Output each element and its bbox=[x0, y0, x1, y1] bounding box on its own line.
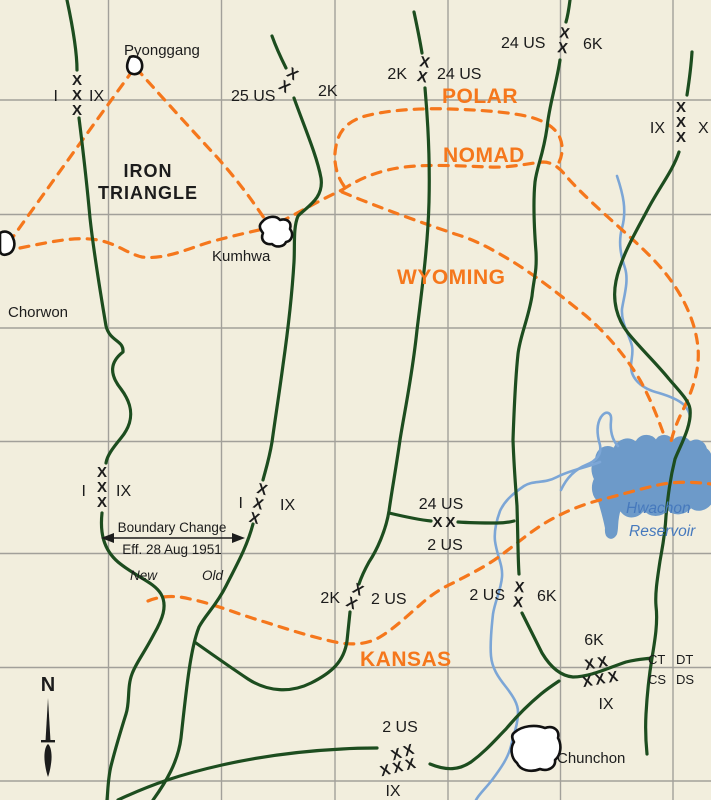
unit-boundary-marker-symbol: XXX bbox=[97, 464, 107, 511]
north-label: N bbox=[41, 674, 55, 696]
unit-label: 2 US bbox=[469, 587, 505, 604]
iron-triangle-label-line1: IRON bbox=[124, 161, 173, 181]
unit-label: I bbox=[82, 483, 86, 500]
unit-label: 2 US bbox=[427, 537, 463, 554]
new-boundary-label: New bbox=[130, 568, 158, 583]
unit-label: IX bbox=[385, 783, 400, 800]
phase-line-wyoming-label: WYOMING bbox=[397, 266, 506, 289]
unit-label: I bbox=[54, 88, 58, 105]
phase-line-nomad-label: NOMAD bbox=[443, 144, 525, 167]
town-kumhwa bbox=[260, 217, 292, 247]
phase-line-polar-label: POLAR bbox=[442, 85, 518, 108]
iron-triangle-label-line2: TRIANGLE bbox=[98, 183, 198, 203]
unit-label: 2 US bbox=[382, 719, 418, 736]
boundary-change-label-line1: Boundary Change bbox=[118, 520, 227, 535]
unit-label: IX bbox=[650, 120, 665, 137]
unit-label: IX bbox=[89, 88, 104, 105]
svg-text:X: X bbox=[432, 514, 442, 531]
corner-label-dt: DT bbox=[676, 652, 693, 667]
corner-label-ds: DS bbox=[676, 672, 694, 687]
unit-label: IX bbox=[280, 497, 295, 514]
unit-label: 24 US bbox=[501, 35, 545, 52]
unit-label: I bbox=[239, 495, 243, 512]
corner-label-cs: CS bbox=[648, 672, 666, 687]
unit-label: X bbox=[698, 120, 709, 137]
unit-label: 2K bbox=[320, 590, 340, 607]
unit-label: 2K bbox=[387, 66, 407, 83]
unit-label: 25 US bbox=[231, 88, 275, 105]
svg-text:X: X bbox=[445, 514, 455, 531]
phase-line-kansas-label: KANSAS bbox=[360, 648, 452, 671]
unit-boundary-marker-symbol: XXX bbox=[676, 99, 686, 146]
town-pyonggang bbox=[127, 56, 142, 74]
old-boundary-label: Old bbox=[202, 568, 224, 583]
corner-label-ct: CT bbox=[648, 652, 665, 667]
unit-label: 6K bbox=[583, 36, 603, 53]
kumhwa-label: Kumhwa bbox=[212, 248, 271, 265]
svg-text:X: X bbox=[97, 494, 107, 511]
pyonggang-label: Pyonggang bbox=[124, 42, 200, 59]
svg-text:X: X bbox=[512, 594, 523, 612]
reservoir-label-line2: Reservoir bbox=[629, 523, 696, 540]
boundary-change-label-line2: Eff. 28 Aug 1951 bbox=[122, 542, 222, 557]
map-canvas: XXXIIXXX25 US2KXX2K24 USXX24 US6KXXXIXXX… bbox=[0, 0, 711, 800]
unit-label: 2 US bbox=[371, 591, 407, 608]
svg-text:X: X bbox=[676, 129, 686, 146]
unit-label: 24 US bbox=[437, 66, 481, 83]
unit-label: 24 US bbox=[419, 496, 463, 513]
unit-boundary-marker-symbol: XXX bbox=[72, 72, 82, 119]
map-stage: XXXIIXXX25 US2KXX2K24 USXX24 US6KXXXIXXX… bbox=[0, 0, 711, 800]
unit-label: 6K bbox=[584, 632, 604, 649]
unit-label: 2K bbox=[318, 83, 338, 100]
chunchon-label: Chunchon bbox=[557, 750, 625, 767]
chorwon-label: Chorwon bbox=[8, 304, 68, 321]
svg-text:X: X bbox=[72, 102, 82, 119]
reservoir-label-line1: Hwachon bbox=[626, 500, 691, 517]
unit-label: IX bbox=[116, 483, 131, 500]
town-chunchon bbox=[512, 726, 561, 771]
unit-label: IX bbox=[598, 696, 613, 713]
town-chorwon bbox=[0, 232, 14, 255]
unit-label: 6K bbox=[537, 588, 557, 605]
